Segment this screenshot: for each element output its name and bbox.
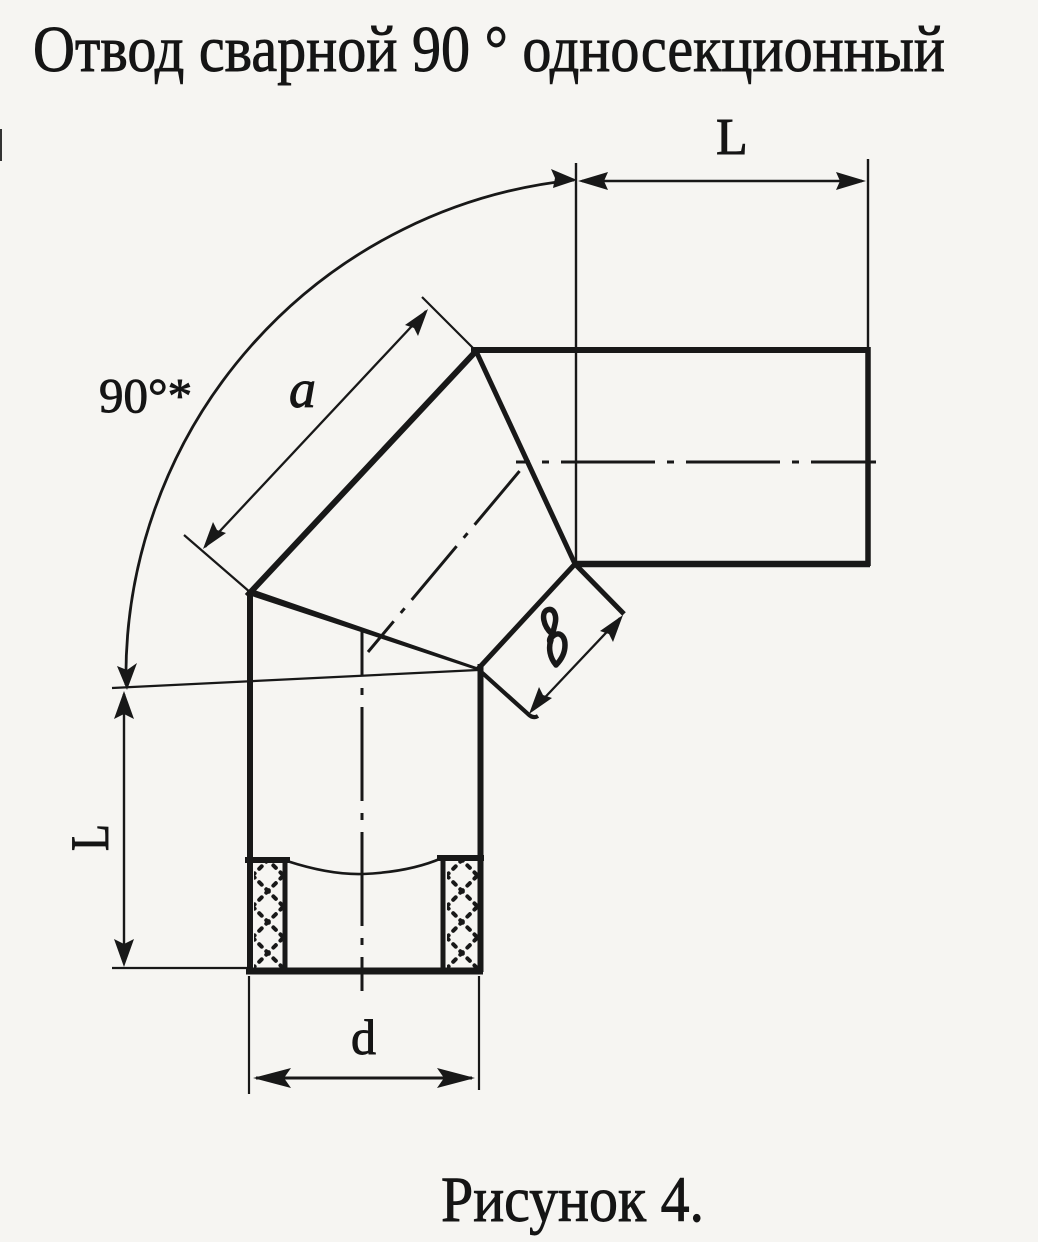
svg-text:a: a: [289, 359, 316, 419]
svg-text:L: L: [716, 109, 748, 166]
svg-text:90°*: 90°*: [99, 368, 192, 423]
svg-text:L: L: [60, 824, 120, 851]
svg-text:Отвод сварной 90 ° односекцион: Отвод сварной 90 ° односекционный: [33, 13, 945, 86]
svg-text:Рисунок 4.: Рисунок 4.: [441, 1164, 704, 1236]
svg-text:d: d: [351, 1009, 376, 1065]
